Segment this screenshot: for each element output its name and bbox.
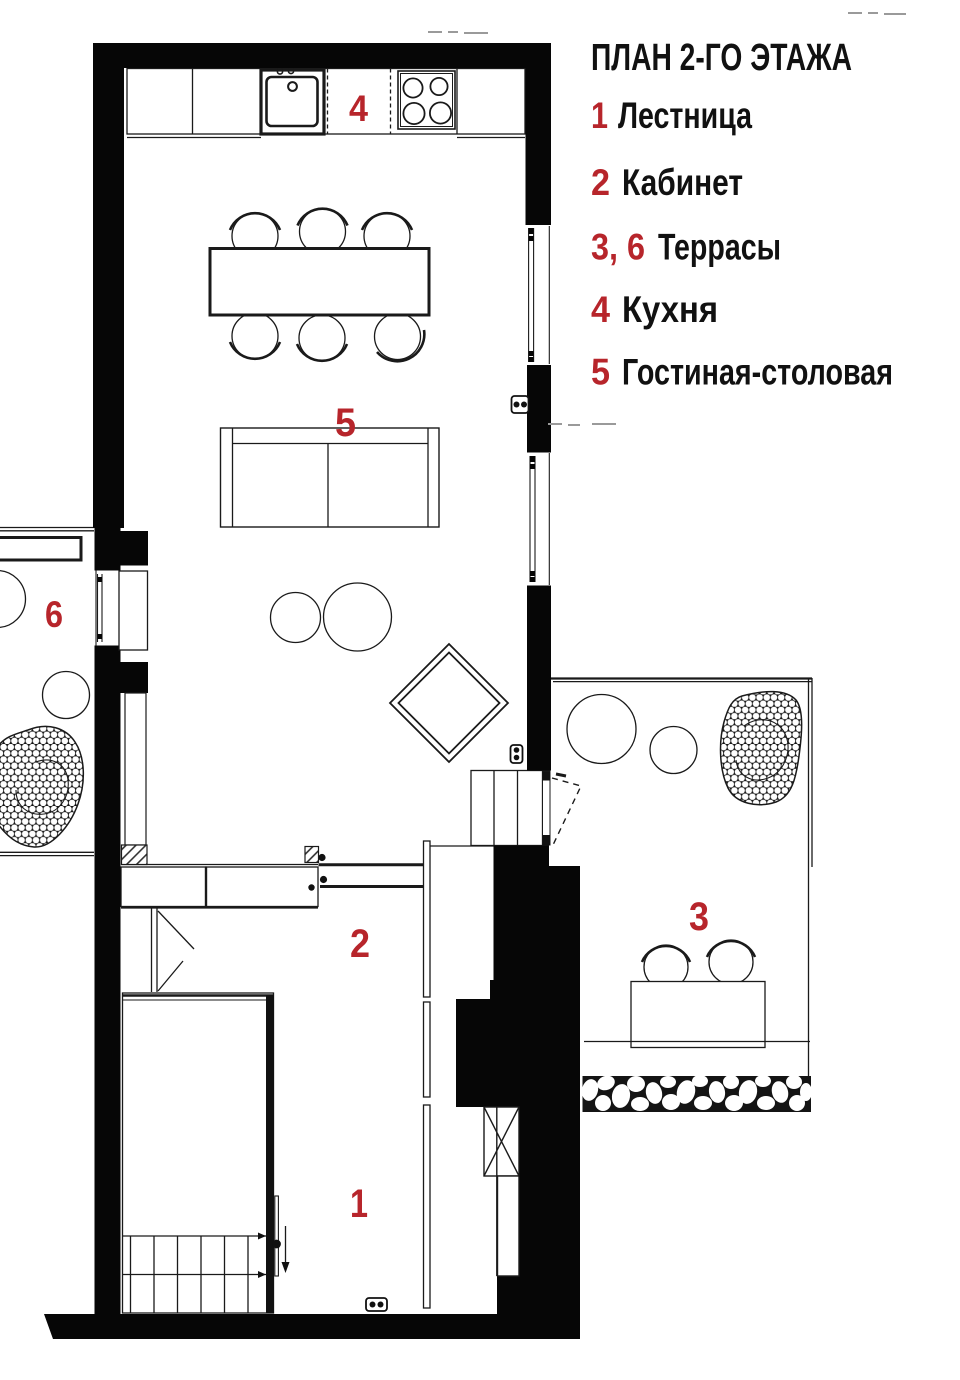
svg-text:4: 4 (349, 88, 368, 129)
svg-text:Лестница: Лестница (618, 95, 752, 136)
svg-text:3, 6: 3, 6 (591, 227, 645, 268)
svg-text:Кабинет: Кабинет (622, 162, 743, 203)
svg-text:3: 3 (689, 895, 709, 939)
svg-text:1: 1 (591, 95, 608, 136)
svg-text:4: 4 (591, 289, 610, 330)
svg-text:Гостиная-столовая: Гостиная-столовая (622, 352, 893, 393)
svg-text:2: 2 (591, 162, 610, 203)
svg-text:1: 1 (350, 1182, 368, 1226)
svg-text:Кухня: Кухня (622, 289, 718, 330)
svg-text:Террасы: Террасы (658, 227, 781, 268)
svg-text:5: 5 (335, 401, 356, 445)
svg-text:6: 6 (45, 594, 63, 635)
svg-text:ПЛАН 2-ГО ЭТАЖА: ПЛАН 2-ГО ЭТАЖА (591, 37, 852, 79)
svg-text:2: 2 (350, 922, 370, 966)
svg-text:5: 5 (591, 352, 610, 393)
